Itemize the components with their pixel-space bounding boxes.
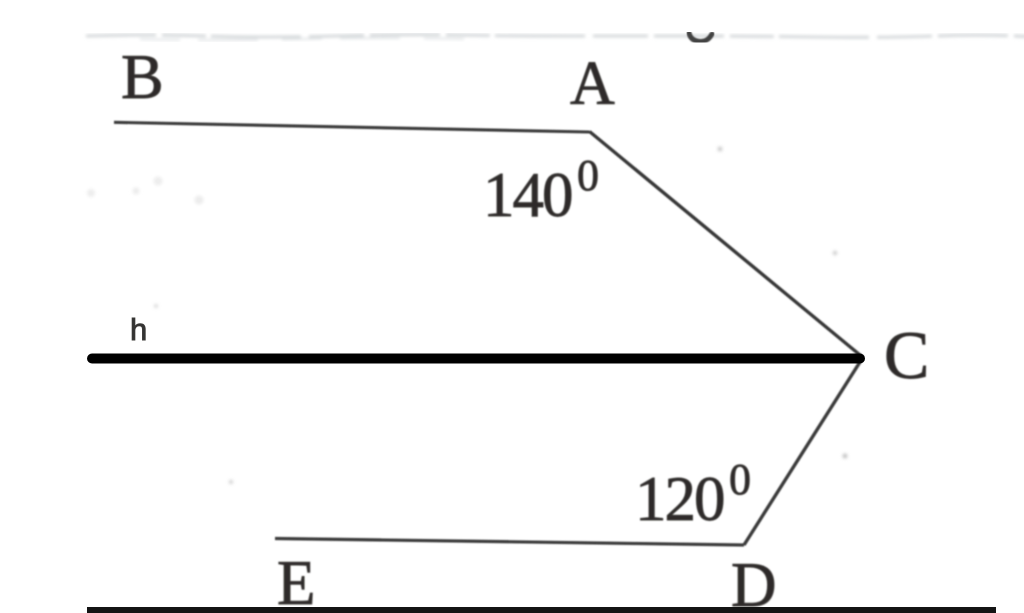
- svg-text:A: A: [570, 50, 615, 118]
- svg-text:D: D: [731, 550, 777, 613]
- svg-text:0: 0: [577, 151, 599, 200]
- svg-text:h: h: [130, 312, 147, 347]
- svg-text:120: 120: [635, 464, 724, 534]
- svg-text:140: 140: [483, 160, 572, 230]
- svg-text:C: C: [884, 317, 929, 393]
- svg-text:E: E: [277, 548, 315, 613]
- svg-text:B: B: [121, 41, 164, 112]
- svg-text:0: 0: [729, 455, 751, 504]
